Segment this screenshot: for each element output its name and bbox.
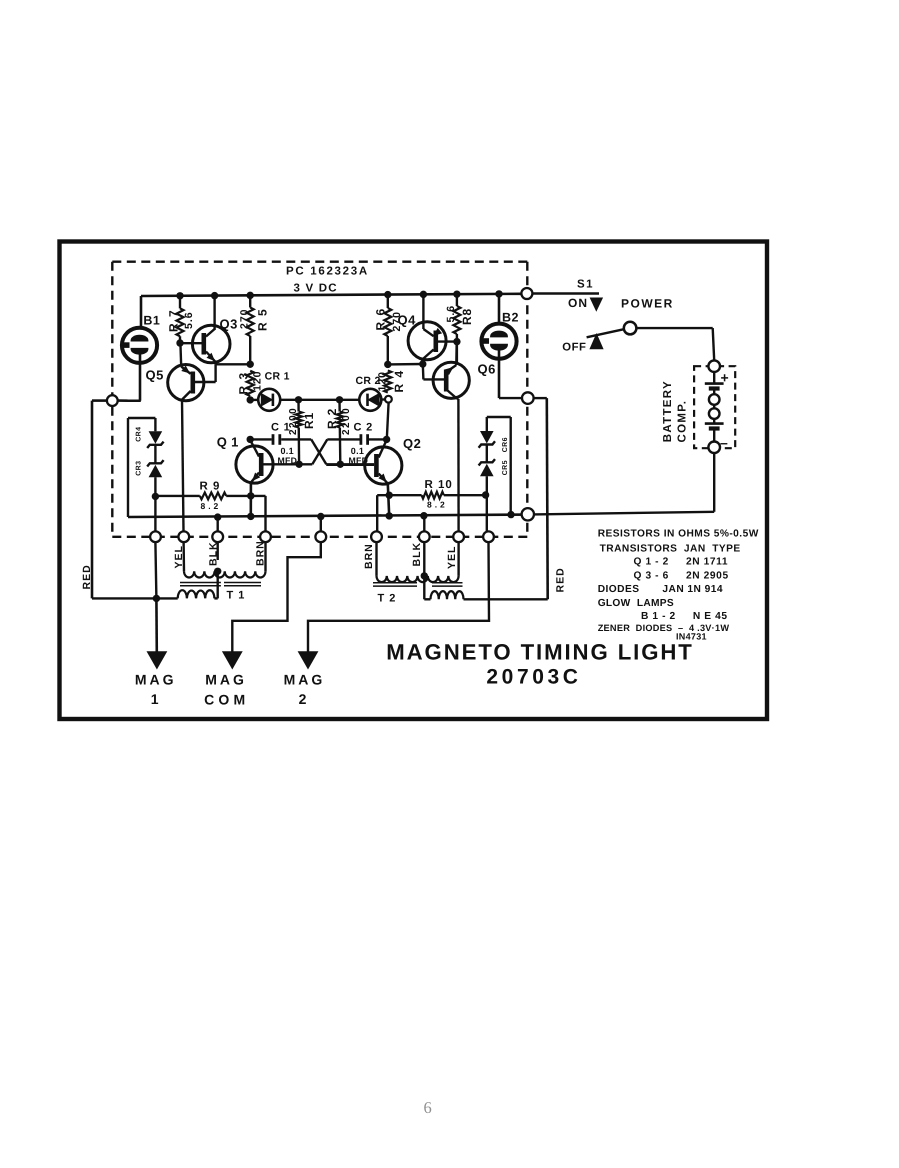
svg-text:YEL: YEL bbox=[173, 545, 185, 568]
svg-text:BLK: BLK bbox=[207, 541, 219, 566]
svg-text:COMP.: COMP. bbox=[677, 400, 689, 443]
svg-text:CR5: CR5 bbox=[502, 460, 509, 475]
svg-text:2200: 2200 bbox=[341, 407, 352, 435]
svg-text:Q3: Q3 bbox=[220, 317, 238, 332]
svg-text:B2: B2 bbox=[502, 311, 519, 325]
svg-text:B1: B1 bbox=[143, 314, 160, 328]
svg-text:BLK: BLK bbox=[411, 542, 423, 567]
svg-text:RESISTORS IN OHMS 5%-0.5W: RESISTORS IN OHMS 5%-0.5W bbox=[598, 529, 759, 540]
svg-text:IN4731: IN4731 bbox=[676, 632, 707, 642]
svg-text:MFD: MFD bbox=[278, 455, 298, 465]
svg-text:T 1: T 1 bbox=[227, 590, 246, 602]
svg-text:GLOW LAMPS: GLOW LAMPS bbox=[598, 598, 674, 609]
svg-text:Q 3 - 6 2N 2905: Q 3 - 6 2N 2905 bbox=[634, 571, 729, 582]
svg-text:RED: RED bbox=[554, 567, 566, 592]
svg-text:ON: ON bbox=[568, 296, 588, 310]
svg-text:5.6: 5.6 bbox=[445, 305, 457, 323]
svg-text:R 9: R 9 bbox=[200, 481, 221, 493]
svg-text:R1: R1 bbox=[302, 412, 316, 429]
svg-text:270: 270 bbox=[238, 308, 250, 329]
svg-text:CR 1: CR 1 bbox=[265, 371, 290, 383]
svg-text:S1: S1 bbox=[577, 279, 594, 291]
svg-text:Q 1 - 2 2N 1711: Q 1 - 2 2N 1711 bbox=[634, 557, 729, 568]
svg-text:B 1 - 2 N E 45: B 1 - 2 N E 45 bbox=[641, 611, 728, 622]
svg-text:+: + bbox=[721, 370, 729, 386]
svg-text:R 2: R 2 bbox=[325, 408, 339, 429]
svg-text:Q5: Q5 bbox=[146, 368, 164, 383]
svg-text:8 . 2: 8 . 2 bbox=[427, 500, 445, 510]
svg-text:YEL: YEL bbox=[446, 546, 458, 569]
svg-text:BRN: BRN bbox=[363, 543, 375, 569]
svg-text:R 10: R 10 bbox=[425, 479, 453, 491]
svg-text:RED: RED bbox=[81, 564, 93, 589]
svg-text:Q2: Q2 bbox=[403, 436, 421, 451]
svg-text:R 6: R 6 bbox=[373, 307, 387, 330]
svg-text:C 2: C 2 bbox=[354, 422, 374, 434]
svg-text:5.6: 5.6 bbox=[183, 311, 195, 329]
svg-text:R 4: R 4 bbox=[392, 369, 406, 392]
svg-text:BRN: BRN bbox=[255, 540, 267, 566]
svg-text:CR3: CR3 bbox=[136, 461, 143, 476]
svg-text:MAG: MAG bbox=[205, 672, 247, 688]
svg-text:MFD: MFD bbox=[349, 455, 369, 465]
svg-text:MAG: MAG bbox=[135, 672, 177, 688]
svg-text:2: 2 bbox=[299, 691, 307, 707]
svg-text:TRANSISTORS JAN TYPE: TRANSISTORS JAN TYPE bbox=[600, 544, 741, 555]
svg-text:DIODES JAN 1N 914: DIODES JAN 1N 914 bbox=[598, 584, 723, 595]
svg-text:6: 6 bbox=[424, 1098, 432, 1117]
svg-text:Q4: Q4 bbox=[398, 313, 417, 328]
svg-text:R 3: R 3 bbox=[236, 371, 250, 394]
svg-text:2200: 2200 bbox=[288, 407, 299, 435]
svg-text:8 . 2: 8 . 2 bbox=[201, 501, 219, 511]
svg-text:–: – bbox=[720, 435, 728, 451]
svg-text:ZENER DIODES – 4 .3V·1W: ZENER DIODES – 4 .3V·1W bbox=[598, 623, 730, 633]
svg-text:MAGNETO TIMING LIGHT: MAGNETO TIMING LIGHT bbox=[386, 640, 694, 665]
svg-text:R 7: R 7 bbox=[167, 309, 181, 332]
svg-text:PC 162323A: PC 162323A bbox=[286, 265, 369, 277]
svg-text:120: 120 bbox=[376, 371, 388, 392]
svg-text:R8: R8 bbox=[460, 308, 474, 325]
svg-text:1: 1 bbox=[151, 691, 159, 707]
svg-text:R 5: R 5 bbox=[255, 308, 269, 331]
svg-text:Q 1: Q 1 bbox=[217, 435, 239, 450]
svg-text:3 V DC: 3 V DC bbox=[294, 283, 338, 295]
svg-text:Q6: Q6 bbox=[478, 362, 496, 377]
svg-text:CR6: CR6 bbox=[502, 437, 509, 452]
svg-text:MAG: MAG bbox=[284, 672, 326, 688]
svg-text:20703C: 20703C bbox=[486, 666, 581, 689]
svg-text:CR4: CR4 bbox=[136, 427, 143, 442]
svg-text:BATTERY: BATTERY bbox=[662, 380, 674, 442]
svg-text:T 2: T 2 bbox=[378, 593, 397, 605]
svg-text:OFF: OFF bbox=[562, 342, 586, 354]
svg-text:120: 120 bbox=[251, 370, 263, 391]
svg-text:COM: COM bbox=[204, 692, 249, 708]
svg-text:POWER: POWER bbox=[621, 297, 674, 311]
